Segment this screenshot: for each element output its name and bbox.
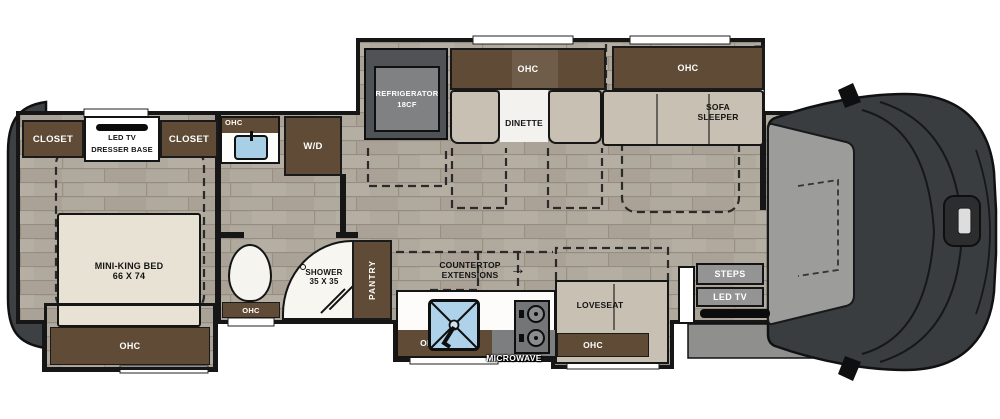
closet-right-label: CLOSET (169, 134, 209, 145)
bath-ohc-label: OHC (222, 118, 278, 127)
entry-door (678, 266, 695, 324)
toilet-ohc: OHC (222, 302, 280, 318)
bath-faucet-icon (250, 131, 253, 141)
sofa-ohc: OHC (612, 46, 764, 90)
wall-toiletroom-right (336, 232, 358, 238)
bath-sink-icon (234, 135, 268, 160)
shower-label-line2: 35 X 35 (310, 277, 339, 286)
shower-label-line1: SHOWER (305, 268, 342, 277)
tv-icon (96, 124, 148, 131)
loveseat-ohc-band: OHC (557, 333, 649, 357)
front-tv-box: LED TV (696, 287, 764, 307)
microwave-label-wrap: MICROWAVE (462, 348, 566, 360)
extension-arrow-icon: → (500, 261, 536, 279)
bed-label-line1: MINI-KING BED (95, 261, 164, 271)
bedroom-tv-dresser-cabinet: LED TV DRESSER BASE (84, 116, 160, 162)
truck-cab (768, 83, 996, 381)
microwave-label: MICROWAVE (486, 353, 541, 363)
fridge-label-line2: 18CF (397, 100, 417, 109)
pantry-label: PANTRY (367, 260, 377, 300)
wd-label: W/D (303, 141, 322, 152)
cooktop-knob-icon (519, 334, 524, 342)
dinette-label: DINETTE (505, 118, 543, 128)
sofa-cushion-divider (656, 94, 658, 144)
dinette-bench-right (548, 90, 602, 144)
front-tv-label: LED TV (713, 292, 747, 302)
floorplan: CLOSET LED TV DRESSER BASE CLOSET MINI-K… (0, 0, 1000, 419)
cooktop-icon (514, 300, 550, 354)
dresser-base-label: DRESSER BASE (91, 145, 153, 154)
steps-label: STEPS (714, 269, 745, 279)
pantry: PANTRY (352, 240, 392, 320)
fridge-label-line1: REFRIGERATOR (376, 89, 439, 98)
bed-ohc: OHC (50, 327, 210, 365)
bed-label-line2: 66 X 74 (113, 271, 145, 281)
sofa-label-line1: SOFA (706, 102, 730, 112)
closet-left: CLOSET (22, 120, 84, 158)
closet-left-label: CLOSET (33, 134, 73, 145)
burner-icon (527, 305, 545, 323)
wall-hallway (340, 174, 346, 238)
loveseat-ohc-label: OHC (558, 340, 628, 350)
shower-hatch-line (320, 288, 345, 313)
front-tv-icon (700, 309, 770, 318)
sofa-sleeper: SOFA SLEEPER (602, 90, 764, 146)
burner-icon (527, 329, 545, 347)
cab-interior-area (768, 124, 854, 324)
kitchen-sink-icon (428, 299, 480, 351)
cooktop-knob-icon (519, 310, 524, 318)
dinette-table: DINETTE (500, 90, 548, 142)
refrigerator: REFRIGERATOR 18CF (364, 48, 448, 140)
loveseat: LOVESEAT OHC (555, 280, 669, 364)
washer-dryer: W/D (284, 116, 342, 176)
toilet-icon (228, 244, 272, 302)
grille-slot (958, 208, 971, 234)
sofa-label-line2: SLEEPER (697, 112, 738, 122)
bed-ohc-label: OHC (120, 341, 141, 351)
bath-vanity-counter: OHC (220, 116, 280, 164)
closet-right: CLOSET (160, 120, 218, 158)
sofa-ohc-label: OHC (678, 63, 699, 73)
wall-toiletroom-left (216, 232, 244, 238)
toilet-ohc-label: OHC (242, 306, 260, 315)
loveseat-label: LOVESEAT (561, 300, 639, 310)
shower-drain-icon (300, 264, 306, 270)
bedroom-tv-label: LED TV (108, 133, 136, 142)
dinette-ohc: OHC (450, 48, 606, 90)
countertop-label-line1: COUNTERTOP (439, 260, 500, 270)
countertop-label-line2: EXTENSIONS (442, 270, 499, 280)
steps-box: STEPS (696, 263, 764, 285)
dinette-bench-left (450, 90, 500, 144)
